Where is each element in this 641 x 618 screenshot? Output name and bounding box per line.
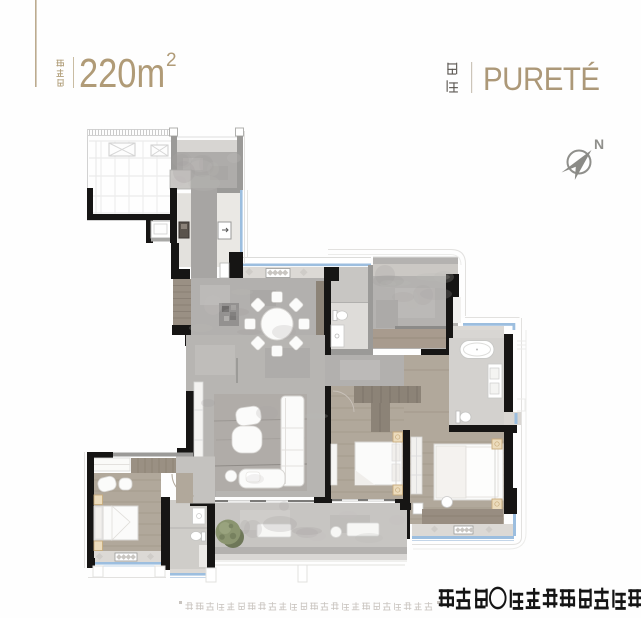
svg-text:N: N — [594, 136, 604, 152]
svg-text:220m: 220m — [79, 51, 165, 96]
svg-text:2: 2 — [166, 50, 177, 71]
svg-text:PURETÉ: PURETÉ — [483, 61, 600, 97]
